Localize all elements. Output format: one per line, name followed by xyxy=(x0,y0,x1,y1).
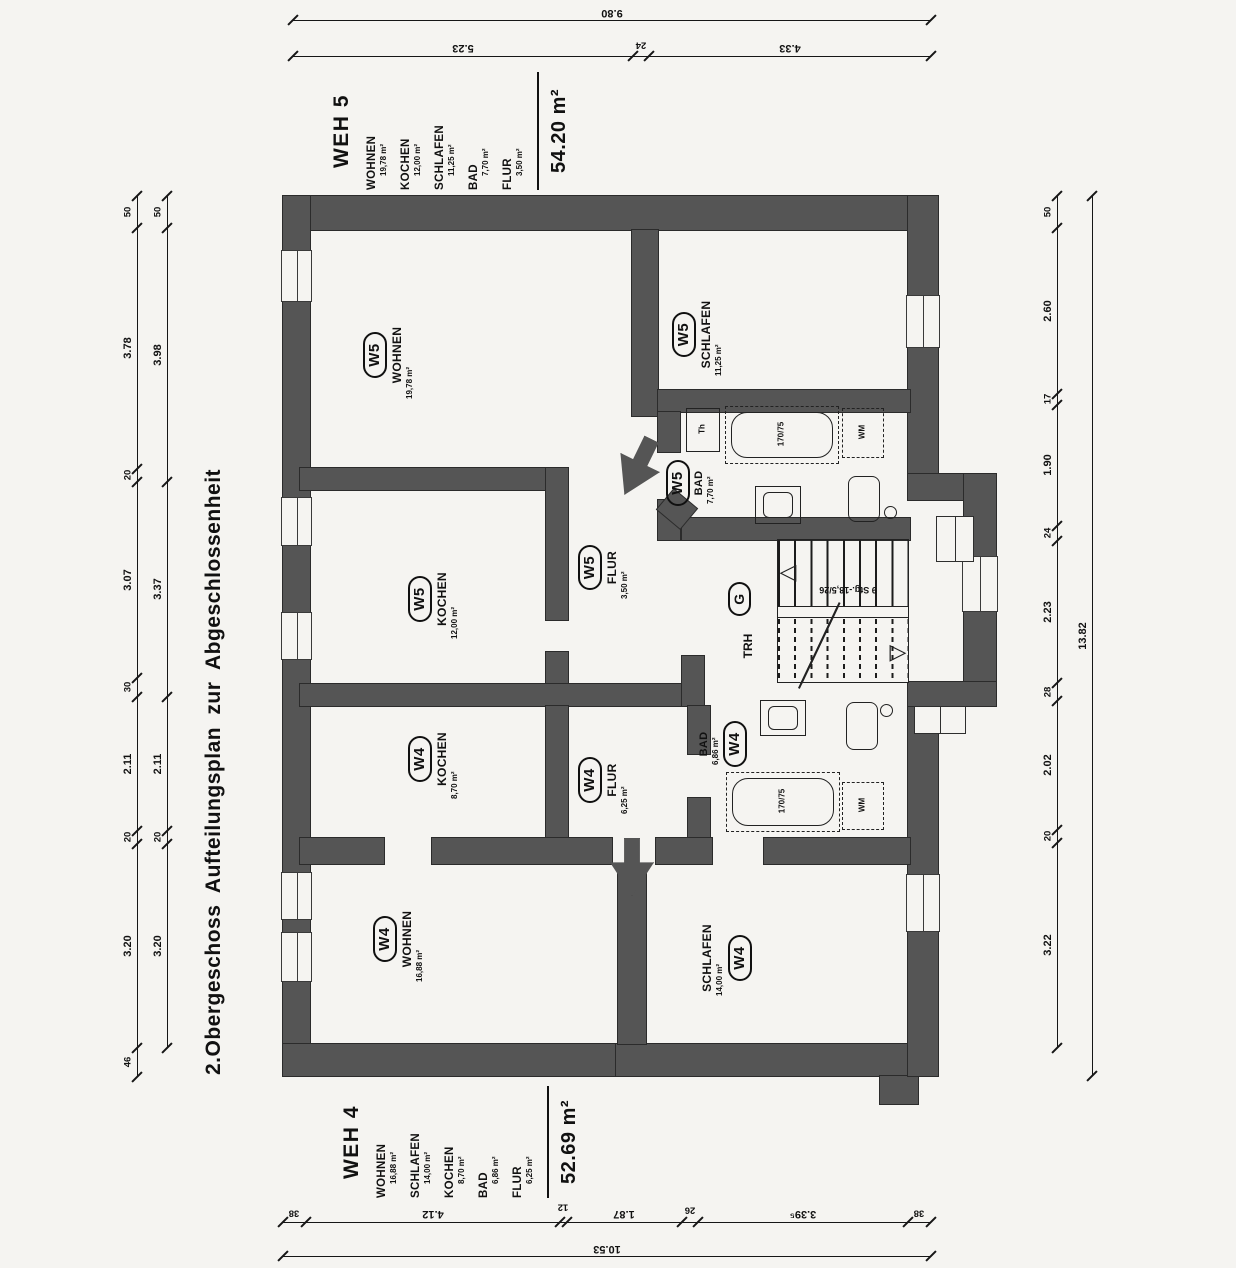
wall-segment xyxy=(688,798,710,840)
dim-label: 2.60 xyxy=(1042,300,1054,321)
wall-segment xyxy=(300,468,568,490)
wall-segment xyxy=(658,412,680,452)
legend-weh5: WEH 5 WOHNEN 19,78 m² KOCHEN 12,00 m² SC… xyxy=(330,72,598,190)
wall-segment xyxy=(616,1044,914,1076)
drain-circle xyxy=(884,506,897,519)
legend-weh4-title: WEH 4 xyxy=(340,1086,364,1198)
dim-label: 5.23 xyxy=(452,42,473,54)
dim-label: 3.20 xyxy=(152,935,164,956)
dim-label: 3.37 xyxy=(152,578,164,599)
bathtub-size-label: 170/75 xyxy=(778,789,787,813)
legend-weh4-separator xyxy=(547,1086,549,1198)
sink-basin xyxy=(763,492,793,518)
window xyxy=(281,250,312,302)
stair-run-up xyxy=(778,540,908,606)
room-label-w5-wohnen: W5 WOHNEN 19,78 m² xyxy=(363,295,425,415)
legend-weh4-schlafen: SCHLAFEN 14,00 m² xyxy=(410,1086,432,1198)
window xyxy=(906,295,940,348)
legend-weh5-bad: BAD 7,70 m² xyxy=(468,72,490,190)
legend-weh5-title: WEH 5 xyxy=(330,72,354,190)
room-label-w5-schlafen: W5 SCHLAFEN 11,25 m² xyxy=(672,277,730,392)
dim-label: 12 xyxy=(558,1202,569,1213)
stair-run-down xyxy=(778,618,908,682)
wall-segment xyxy=(682,656,704,706)
dim-line-bottom xyxy=(283,1222,931,1223)
legend-weh5-flur: FLUR 3,50 m² xyxy=(502,72,524,190)
dim-label: 24 xyxy=(636,40,647,51)
stairwell-tag: G xyxy=(728,576,758,622)
dim-line-bottom-total xyxy=(283,1256,931,1257)
stair-flight xyxy=(778,540,908,682)
dim-label: 2.23 xyxy=(1042,601,1054,622)
window xyxy=(281,872,312,920)
bathtub-size-label: 170/75 xyxy=(777,422,786,446)
dim-label: 3.20 xyxy=(122,935,134,956)
floor-plan-sheet: 2.Obergeschoss Aufteilungsplan zur Abges… xyxy=(0,0,1236,1268)
wall-segment xyxy=(656,838,712,864)
window xyxy=(962,556,998,612)
room-label-w5-flur: W5 FLUR 3,50 m² xyxy=(578,520,630,615)
legend-weh4-wohnen: WOHNEN 16,88 m² xyxy=(376,1086,398,1198)
stair-arrow-up-icon: ◁ xyxy=(780,559,797,585)
room-label-w5-bad: W5 BAD 7,70 m² xyxy=(666,452,724,514)
legend-weh5-kochen: KOCHEN 12,00 m² xyxy=(400,72,422,190)
entry-arrow-w4 xyxy=(610,838,654,896)
dim-label: 4.33 xyxy=(779,42,800,54)
room-label-w4-kochen: W4 KOCHEN 8,70 m² xyxy=(408,703,468,815)
room-label-w4-bad: BAD 6,86 m² W4 xyxy=(698,713,760,775)
legend-weh4-flur: FLUR 6,25 m² xyxy=(512,1086,534,1198)
legend-weh5-wohnen: WOHNEN 19,78 m² xyxy=(366,72,388,190)
dim-label: 50 xyxy=(123,207,134,218)
dim-label: 50 xyxy=(153,207,164,218)
wall-segment xyxy=(632,230,658,416)
dim-label: 9.80 xyxy=(601,7,622,19)
dim-line-top xyxy=(293,56,931,57)
toilet xyxy=(848,476,880,522)
window xyxy=(906,874,940,932)
dim-label: 3.78 xyxy=(122,337,134,358)
dim-line-left-outer xyxy=(137,196,138,1077)
legend-weh5-separator xyxy=(537,72,539,190)
dim-label: 1.90 xyxy=(1042,454,1054,475)
dim-label: 3.39⁵ xyxy=(790,1208,817,1220)
room-label-w5-kochen: W5 KOCHEN 12,00 m² xyxy=(408,543,468,655)
window xyxy=(281,932,312,982)
wall-segment xyxy=(283,196,933,230)
dim-label: 2.11 xyxy=(152,754,164,775)
legend-weh4: WEH 4 WOHNEN 16,88 m² SCHLAFEN 14,00 m² … xyxy=(340,1086,598,1198)
dim-line-top-total xyxy=(293,20,931,21)
plan-title: 2.Obergeschoss Aufteilungsplan zur Abges… xyxy=(202,469,226,1075)
sink-basin xyxy=(768,706,798,730)
dim-label: 13.82 xyxy=(1077,622,1089,650)
shaft-box xyxy=(914,706,966,734)
wall-segment xyxy=(908,682,996,706)
room-label-w4-flur: W4 FLUR 6,25 m² xyxy=(578,730,630,830)
dim-label: 2.11 xyxy=(122,754,134,775)
window xyxy=(281,612,312,660)
boiler-label: Th xyxy=(698,424,707,434)
legend-weh4-bad: BAD 6,86 m² xyxy=(478,1086,500,1198)
dim-label: 2.02 xyxy=(1042,754,1054,775)
wall-segment xyxy=(300,684,692,706)
washing-machine-label: WM xyxy=(858,425,867,439)
stairwell-oval: G xyxy=(728,582,751,615)
dim-label: 3.07 xyxy=(122,569,134,590)
dim-line-right xyxy=(1057,196,1058,1048)
wall-segment xyxy=(283,1044,633,1076)
washing-machine-label: WM xyxy=(858,798,867,812)
dim-label: 50 xyxy=(1043,207,1054,218)
toilet xyxy=(846,702,878,750)
dim-label: 3.98 xyxy=(152,344,164,365)
stairwell-hall-label: TRH xyxy=(741,634,755,659)
legend-weh4-kochen: KOCHEN 8,70 m² xyxy=(444,1086,466,1198)
stair-landing xyxy=(778,606,908,618)
wall-segment xyxy=(880,1076,918,1104)
room-label-w4-wohnen: W4 WOHNEN 16,88 m² xyxy=(373,880,433,998)
drain-circle xyxy=(880,704,893,717)
wall-segment xyxy=(300,838,384,864)
shaft-box xyxy=(936,516,974,562)
dim-label: 4.12 xyxy=(422,1208,443,1220)
room-label-w4-schlafen: SCHLAFEN 14,00 m² W4 xyxy=(700,904,764,1012)
dim-label: 38 xyxy=(289,1208,300,1219)
wall-segment xyxy=(546,468,568,620)
stair-arrow-down-icon: ▷ xyxy=(890,639,907,665)
legend-weh5-schlafen: SCHLAFEN 11,25 m² xyxy=(434,72,456,190)
dim-line-right-total xyxy=(1092,196,1093,1076)
wall-segment xyxy=(764,838,910,864)
dim-label: 38 xyxy=(914,1208,925,1219)
window xyxy=(281,497,312,546)
dim-label: 26 xyxy=(685,1205,696,1216)
stair-note: 9 Stg.-18,5/26 xyxy=(819,585,877,595)
legend-weh5-total: 54.20 m² xyxy=(548,72,571,190)
dim-label: 46 xyxy=(123,1057,134,1068)
wall-segment xyxy=(432,838,612,864)
legend-weh4-total: 52.69 m² xyxy=(558,1086,581,1198)
wall-segment xyxy=(546,706,568,838)
dim-label: 10.53 xyxy=(593,1243,621,1255)
dim-label: 1.87 xyxy=(613,1208,634,1220)
dim-line-left-inner xyxy=(167,196,168,1048)
dim-label: 3.22 xyxy=(1042,934,1054,955)
